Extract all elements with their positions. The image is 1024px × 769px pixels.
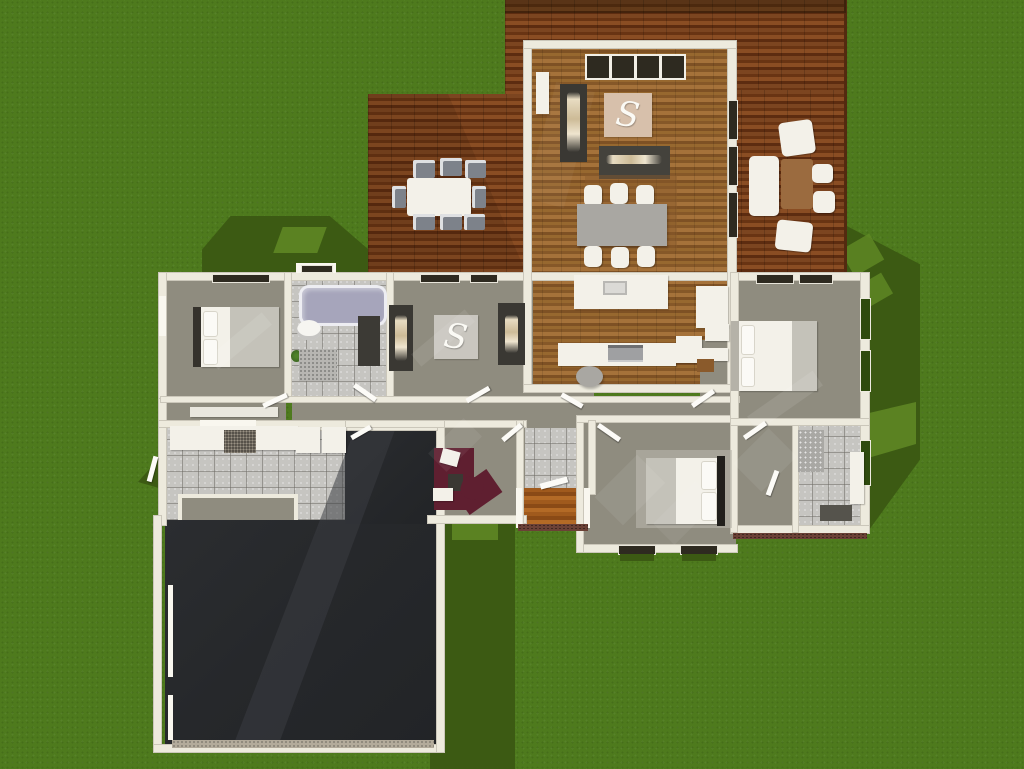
window-well-shadow-2 <box>682 554 716 561</box>
office-paper <box>433 488 453 501</box>
window-bedroom1-north <box>212 274 270 283</box>
window-master-north-2 <box>799 274 833 284</box>
bedroom3-pillow-1 <box>701 461 717 490</box>
laundry-basket <box>224 430 256 453</box>
outdoor-dining-chair-right <box>472 186 486 208</box>
wall-porch-post-west <box>516 488 522 528</box>
dining-chair-top-3 <box>636 185 654 206</box>
window-master-east-1 <box>860 298 871 340</box>
wall-bedroom3-top <box>576 415 738 423</box>
clerestory-window-3 <box>635 54 661 80</box>
wall-garage-west <box>153 515 162 752</box>
clerestory-window-4 <box>660 54 686 80</box>
window-media-north-2 <box>470 274 498 283</box>
lounge-coffee-table <box>781 159 813 209</box>
greatroom-sideboard <box>536 72 549 114</box>
greatroom-sofa-driftwood <box>606 155 662 164</box>
clerestory-window-2 <box>610 54 636 80</box>
outdoor-dining-chair-bottom-mid <box>440 214 462 230</box>
outdoor-dining-chair-top-right <box>465 160 486 178</box>
window-master-north-1 <box>756 274 794 284</box>
wall-office-south <box>427 515 527 524</box>
dining-chair-bottom-3 <box>637 246 655 267</box>
dining-chair-bottom-1 <box>584 246 602 267</box>
wall-greatroom-north <box>523 40 737 49</box>
wall-entry-east <box>588 420 596 495</box>
wall-bedroom1-east <box>284 272 292 403</box>
window-greatroom-east-1 <box>728 100 738 140</box>
lounge-ottoman-1 <box>812 164 833 183</box>
master-headboard <box>731 321 739 391</box>
floorplan-3d-render-viewport[interactable] <box>0 0 1024 769</box>
toilet <box>297 320 321 340</box>
right-block-brick-edge <box>733 533 867 539</box>
dining-table <box>577 204 667 246</box>
lounge-ottoman-2 <box>813 191 835 213</box>
bathroom1-vanity <box>358 316 380 366</box>
master-pillow-2 <box>741 357 755 387</box>
lounge-armchair-north <box>778 119 816 157</box>
outdoor-dining-chair-top-left <box>413 160 435 178</box>
closet-strip-shelf <box>190 407 278 417</box>
porch-brick-edge <box>518 524 588 531</box>
greatroom-rug-s <box>604 93 652 137</box>
lounge-armchair-south <box>775 219 814 253</box>
outdoor-dining-table <box>407 178 471 216</box>
outdoor-dining-chair-bottom-right <box>464 214 485 230</box>
wall-kitchen-south <box>523 384 737 393</box>
clerestory-window-1 <box>585 54 611 80</box>
deck-edge-east <box>844 0 847 277</box>
dryer <box>322 427 346 453</box>
dining-chair-top-2 <box>610 183 628 204</box>
wall-garage-arm-north <box>345 420 445 428</box>
deck-roof-shade <box>505 0 846 13</box>
bathroom1-mat <box>299 349 337 381</box>
outdoor-dining-chair-bottom-left <box>413 214 435 230</box>
window-media-north-1 <box>420 274 460 283</box>
kitchen-cabinet-small <box>705 324 729 341</box>
media-console-driftwood <box>505 315 518 353</box>
bathroom1-bay-glass <box>301 265 333 273</box>
window-greatroom-east-3 <box>728 192 738 238</box>
garage-door-sill <box>172 740 434 748</box>
garage-wall-light-2 <box>168 695 173 740</box>
media-fireplace-driftwood <box>395 315 407 361</box>
lounge-sofa <box>749 156 779 216</box>
bedroom1-pillow-1 <box>203 311 218 337</box>
wall-west-lower <box>158 398 167 526</box>
wall-bedroom3-west <box>576 415 584 553</box>
bathroom2-mat <box>820 505 852 521</box>
outdoor-dining-chair-top-mid <box>440 158 462 176</box>
outdoor-dining-chair-left <box>392 186 406 208</box>
fridge <box>696 286 728 328</box>
wall-hall-north <box>160 396 740 403</box>
kitchen-stove <box>608 345 643 362</box>
window-greatroom-east-2 <box>728 146 738 186</box>
garage-wall-light-1 <box>168 585 173 677</box>
window-well-shadow-1 <box>620 554 654 561</box>
window-bedroom1-west <box>159 296 166 336</box>
wall-west-upper <box>158 272 167 406</box>
master-closet-bench <box>697 359 714 372</box>
dining-chair-top-1 <box>584 185 602 206</box>
bedroom1-headboard <box>193 307 201 367</box>
dining-chair-bottom-2 <box>611 247 629 268</box>
greatroom-fireplace-driftwood <box>567 92 580 152</box>
bedroom3-headboard <box>717 456 725 526</box>
shower <box>798 430 824 472</box>
bathroom2-vanity <box>850 452 864 504</box>
wall-porch-post-east <box>584 488 590 528</box>
kitchen-sink <box>603 281 627 295</box>
washer <box>296 427 320 453</box>
window-master-east-2 <box>860 350 871 392</box>
master-pillow-1 <box>741 325 755 355</box>
kitchen-round-table <box>576 366 603 387</box>
